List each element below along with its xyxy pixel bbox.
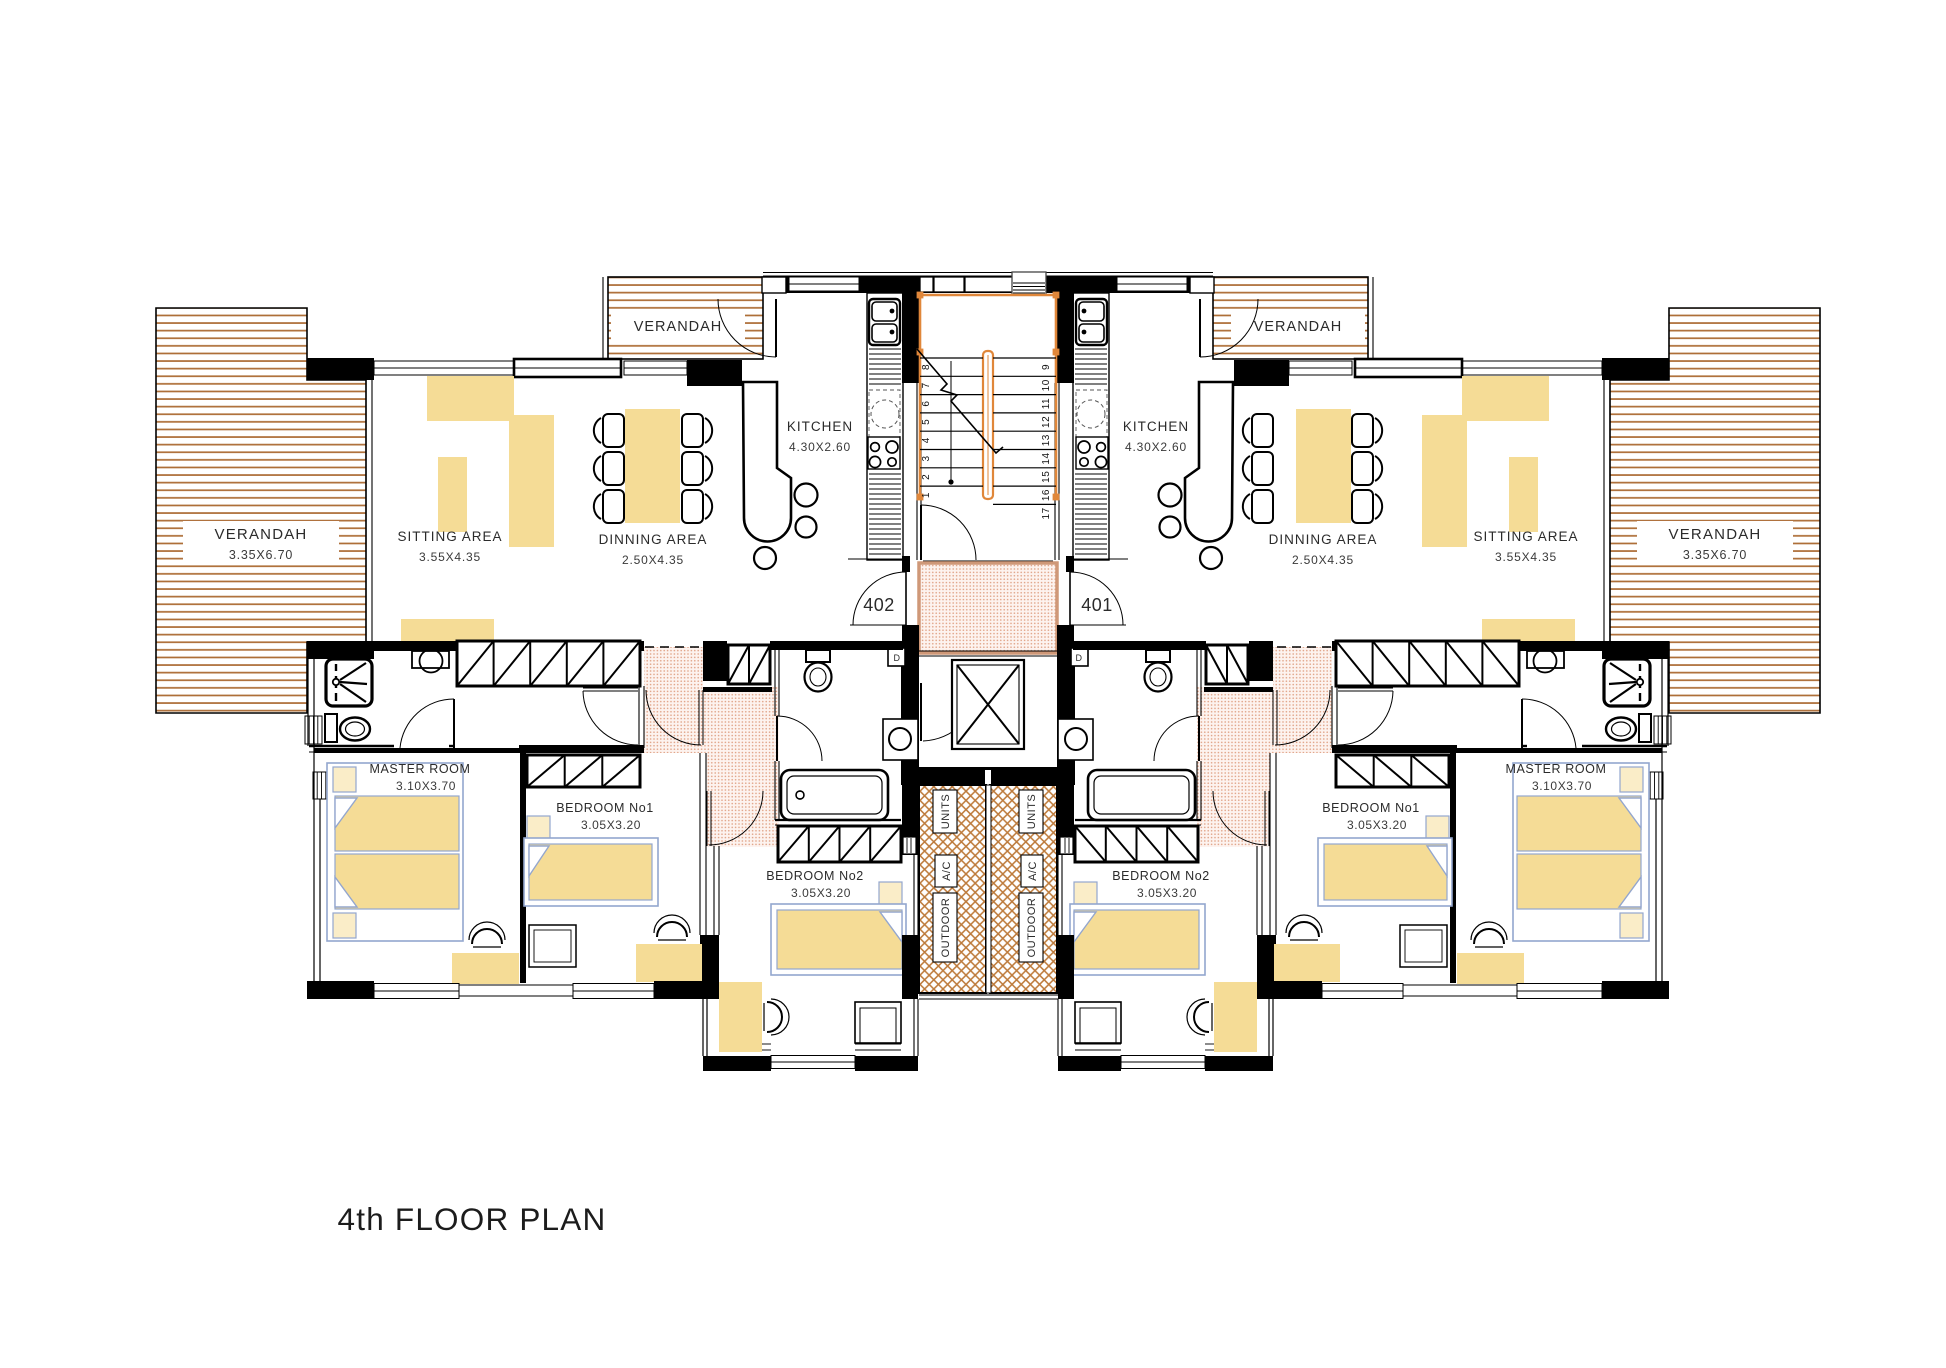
svg-text:DINNING AREA: DINNING AREA <box>599 532 708 547</box>
svg-text:D: D <box>894 653 901 663</box>
svg-text:KITCHEN: KITCHEN <box>787 419 853 434</box>
svg-text:17: 17 <box>1041 507 1052 519</box>
svg-text:OUTDOOR: OUTDOOR <box>1026 898 1038 958</box>
svg-text:A/C: A/C <box>1027 861 1039 881</box>
svg-text:10: 10 <box>1041 379 1052 391</box>
svg-text:VERANDAH: VERANDAH <box>634 319 723 335</box>
svg-text:9: 9 <box>1041 364 1052 370</box>
svg-text:3.10X3.70: 3.10X3.70 <box>396 779 456 793</box>
svg-text:402: 402 <box>863 595 895 615</box>
svg-text:3.35X6.70: 3.35X6.70 <box>1683 548 1747 562</box>
svg-text:A/C: A/C <box>941 861 953 881</box>
svg-text:401: 401 <box>1081 595 1113 615</box>
svg-text:3.10X3.70: 3.10X3.70 <box>1532 779 1592 793</box>
svg-text:3.05X3.20: 3.05X3.20 <box>791 886 851 900</box>
svg-text:12: 12 <box>1041 416 1052 428</box>
svg-text:3.05X3.20: 3.05X3.20 <box>1347 818 1407 832</box>
svg-text:DINNING AREA: DINNING AREA <box>1269 532 1378 547</box>
svg-text:4.30X2.60: 4.30X2.60 <box>789 440 851 454</box>
svg-text:7: 7 <box>921 382 932 388</box>
svg-text:SITTING AREA: SITTING AREA <box>1473 529 1578 544</box>
svg-text:OUTDOOR: OUTDOOR <box>940 898 952 958</box>
svg-text:6: 6 <box>921 401 932 407</box>
svg-text:11: 11 <box>1041 398 1052 409</box>
svg-text:3: 3 <box>921 455 932 461</box>
svg-text:BEDROOM No1: BEDROOM No1 <box>556 801 654 815</box>
svg-text:4th FLOOR PLAN: 4th FLOOR PLAN <box>338 1201 607 1237</box>
svg-text:2: 2 <box>921 474 932 480</box>
svg-text:16: 16 <box>1041 489 1052 501</box>
svg-text:UNITS: UNITS <box>940 794 952 830</box>
svg-text:5: 5 <box>921 419 932 425</box>
svg-text:13: 13 <box>1041 434 1052 446</box>
svg-text:VERANDAH: VERANDAH <box>1254 319 1343 335</box>
svg-text:BEDROOM No1: BEDROOM No1 <box>1322 801 1420 815</box>
svg-text:3.35X6.70: 3.35X6.70 <box>229 548 293 562</box>
svg-text:VERANDAH: VERANDAH <box>215 526 308 543</box>
svg-text:15: 15 <box>1041 471 1052 483</box>
svg-text:14: 14 <box>1041 452 1052 464</box>
svg-text:3.05X3.20: 3.05X3.20 <box>581 818 641 832</box>
svg-text:3.05X3.20: 3.05X3.20 <box>1137 886 1197 900</box>
svg-text:1: 1 <box>921 492 932 498</box>
svg-text:MASTER ROOM: MASTER ROOM <box>369 762 470 776</box>
svg-text:BEDROOM No2: BEDROOM No2 <box>766 869 864 883</box>
svg-text:2.50X4.35: 2.50X4.35 <box>622 553 684 567</box>
svg-text:SITTING AREA: SITTING AREA <box>397 529 502 544</box>
svg-text:3.55X4.35: 3.55X4.35 <box>419 550 481 564</box>
svg-text:MASTER ROOM: MASTER ROOM <box>1505 762 1606 776</box>
svg-text:KITCHEN: KITCHEN <box>1123 419 1189 434</box>
svg-text:2.50X4.35: 2.50X4.35 <box>1292 553 1354 567</box>
svg-text:4.30X2.60: 4.30X2.60 <box>1125 440 1187 454</box>
svg-text:D: D <box>1076 653 1083 663</box>
svg-text:3.55X4.35: 3.55X4.35 <box>1495 550 1557 564</box>
svg-text:4: 4 <box>921 437 932 443</box>
svg-text:UNITS: UNITS <box>1026 794 1038 830</box>
svg-text:VERANDAH: VERANDAH <box>1669 526 1762 543</box>
svg-text:BEDROOM No2: BEDROOM No2 <box>1112 869 1210 883</box>
